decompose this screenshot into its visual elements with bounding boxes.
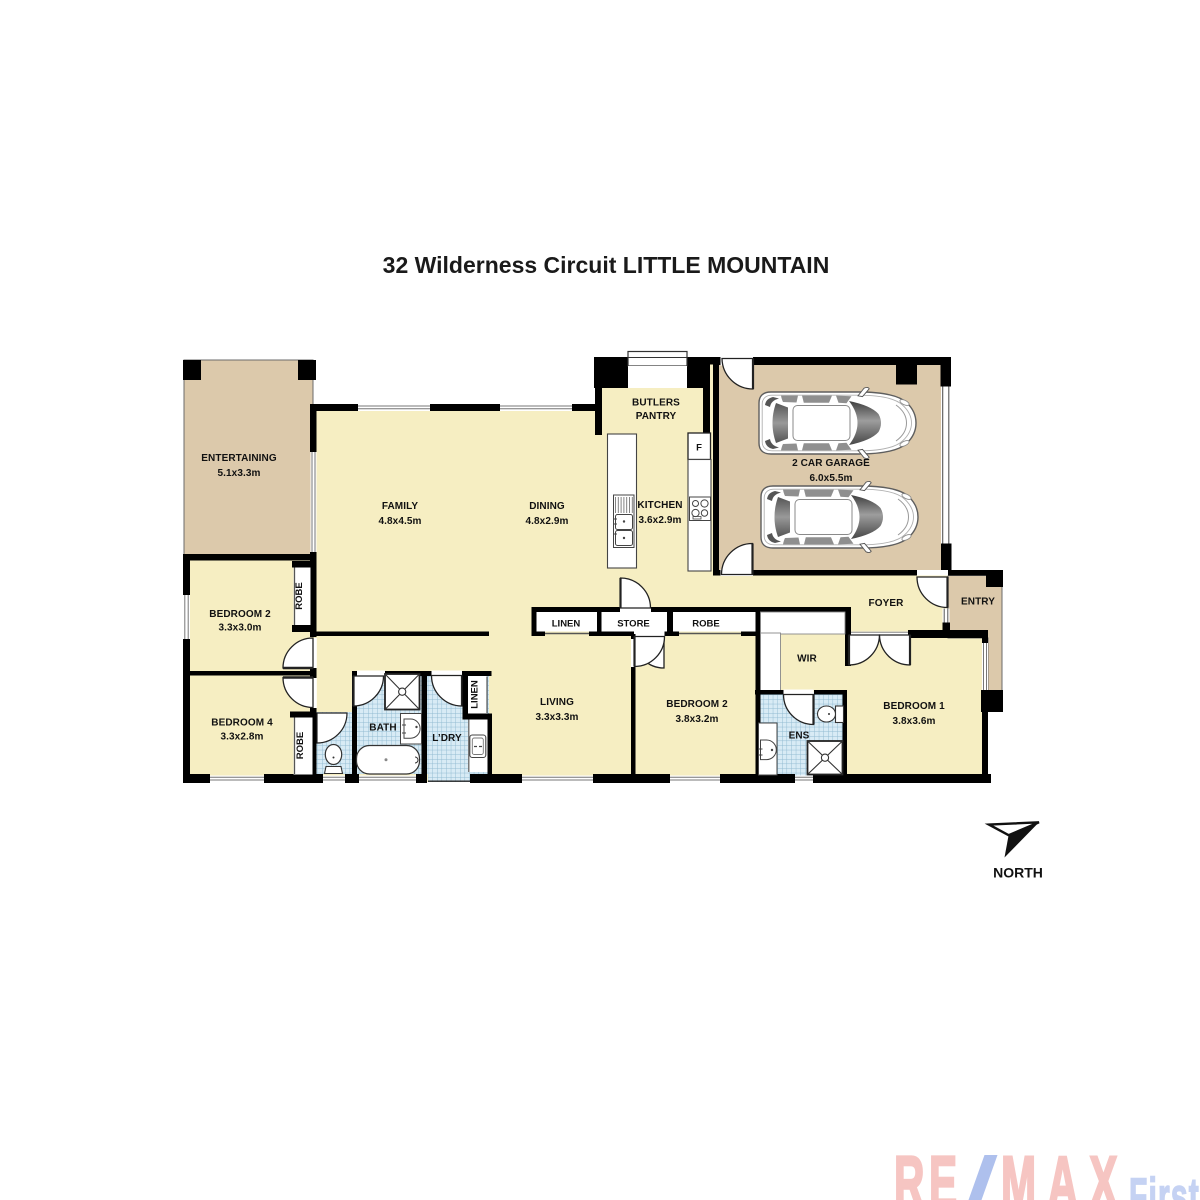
svg-text:First: First: [1129, 1168, 1200, 1200]
svg-text:BUTLERS: BUTLERS: [632, 398, 680, 409]
svg-text:3.3x3.3m: 3.3x3.3m: [535, 712, 578, 723]
svg-text:WIR: WIR: [797, 654, 817, 665]
svg-text:DINING: DINING: [529, 501, 565, 512]
svg-text:NORTH: NORTH: [993, 865, 1043, 881]
svg-text:ROBE: ROBE: [294, 582, 305, 609]
svg-text:BEDROOM 2: BEDROOM 2: [209, 609, 271, 620]
svg-text:3.3x2.8m: 3.3x2.8m: [220, 732, 263, 743]
svg-text:ROBE: ROBE: [692, 619, 719, 630]
svg-text:BEDROOM 2: BEDROOM 2: [666, 699, 728, 710]
svg-text:4.8x2.9m: 4.8x2.9m: [525, 516, 568, 527]
svg-text:L’DRY: L’DRY: [432, 733, 462, 744]
svg-text:LIVING: LIVING: [540, 697, 574, 708]
svg-text:3.3x3.0m: 3.3x3.0m: [218, 623, 261, 634]
svg-text:BEDROOM 4: BEDROOM 4: [211, 718, 273, 729]
svg-text:32 Wilderness Circuit LITTLE M: 32 Wilderness Circuit LITTLE MOUNTAIN: [383, 252, 830, 278]
svg-text:ENTRY: ENTRY: [961, 597, 995, 608]
svg-text:5.1x3.3m: 5.1x3.3m: [217, 468, 260, 479]
svg-text:FOYER: FOYER: [869, 598, 905, 609]
svg-text:3.6x2.9m: 3.6x2.9m: [638, 515, 681, 526]
svg-text:4.8x4.5m: 4.8x4.5m: [378, 516, 421, 527]
svg-text:ENS: ENS: [789, 731, 810, 742]
svg-text:ENTERTAINING: ENTERTAINING: [201, 453, 277, 464]
svg-text:LINEN: LINEN: [470, 680, 481, 709]
svg-text:ROBE: ROBE: [295, 732, 306, 759]
svg-text:3.8x3.6m: 3.8x3.6m: [892, 716, 935, 727]
svg-text:BEDROOM 1: BEDROOM 1: [883, 701, 945, 712]
svg-text:FAMILY: FAMILY: [382, 501, 419, 512]
svg-text:KITCHEN: KITCHEN: [637, 500, 682, 511]
svg-text:STORE: STORE: [617, 619, 650, 630]
svg-text:6.0x5.5m: 6.0x5.5m: [809, 473, 852, 484]
svg-text:PANTRY: PANTRY: [636, 411, 677, 422]
svg-text:RE: RE: [894, 1140, 962, 1200]
svg-text:3.8x3.2m: 3.8x3.2m: [675, 714, 718, 725]
svg-text:MAX: MAX: [1001, 1140, 1129, 1200]
svg-text:2 CAR GARAGE: 2 CAR GARAGE: [792, 458, 870, 469]
svg-text:BATH: BATH: [369, 723, 396, 734]
svg-text:LINEN: LINEN: [552, 619, 581, 630]
svg-text:F: F: [696, 443, 702, 454]
